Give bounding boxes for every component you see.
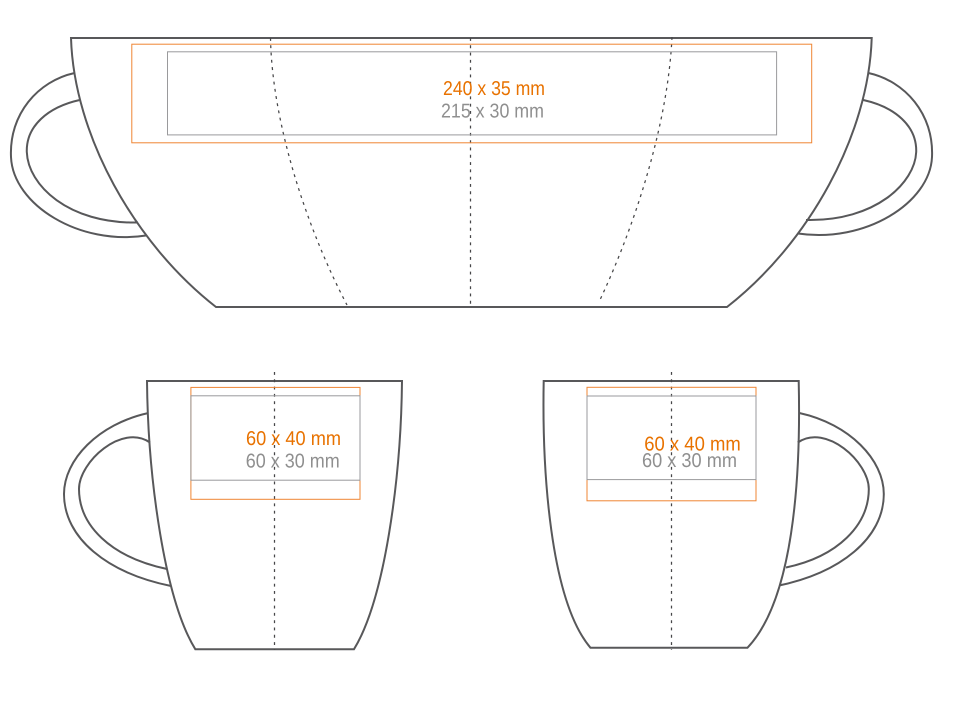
svg-text:60 x 30 mm: 60 x 30 mm bbox=[246, 450, 340, 472]
svg-text:215 x 30 mm: 215 x 30 mm bbox=[441, 101, 544, 123]
svg-text:60 x 40 mm: 60 x 40 mm bbox=[246, 428, 341, 450]
svg-text:60 x 30 mm: 60 x 30 mm bbox=[642, 450, 737, 472]
svg-text:240 x 35 mm: 240 x 35 mm bbox=[443, 78, 545, 100]
